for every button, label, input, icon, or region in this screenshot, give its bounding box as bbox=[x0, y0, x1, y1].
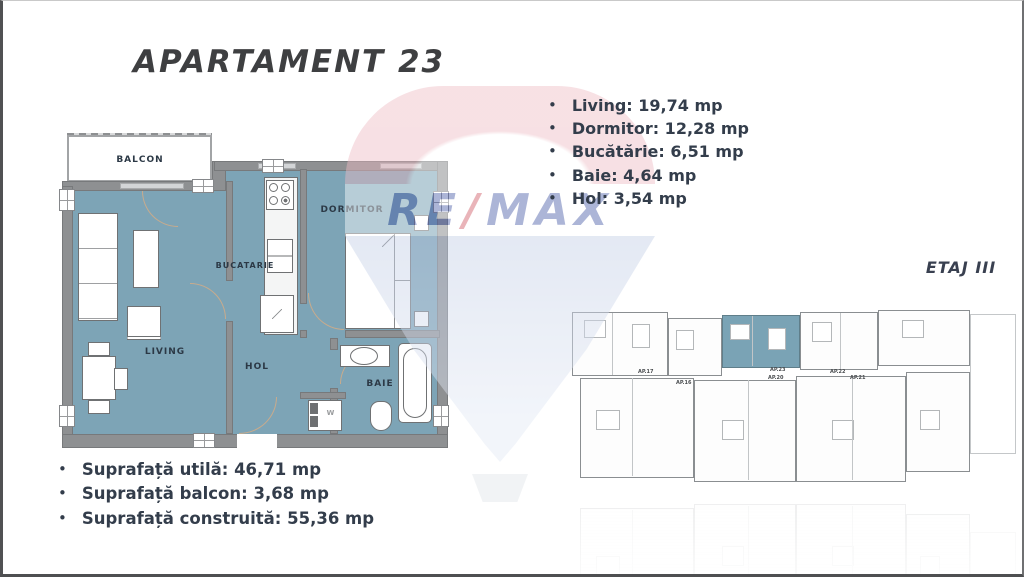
bullet-icon: • bbox=[548, 144, 557, 159]
mini-unit-label: AP.23 bbox=[770, 367, 785, 373]
bullet-icon: • bbox=[548, 121, 557, 136]
washer-drawer bbox=[310, 416, 318, 427]
mini-partition bbox=[852, 376, 853, 480]
mini-furniture bbox=[722, 546, 744, 566]
room-label-living: LIVING bbox=[125, 347, 205, 357]
mini-furniture bbox=[596, 410, 620, 430]
mini-partition bbox=[748, 506, 749, 577]
area-living: Living: 19,74 mp bbox=[572, 96, 723, 115]
bullet-icon: • bbox=[58, 511, 67, 526]
wall-kitchen-dormitor bbox=[300, 169, 307, 304]
coffee-table bbox=[133, 230, 159, 288]
mini-unit-label: AP.21 bbox=[850, 375, 865, 381]
list-item: •Suprafață construită: 55,36 mp bbox=[58, 509, 374, 533]
washer-drawer bbox=[310, 403, 318, 414]
page-title: APARTAMENT 23 bbox=[133, 44, 445, 80]
room-areas-list: •Living: 19,74 mp •Dormitor: 12,28 mp •B… bbox=[548, 96, 749, 212]
mini-unit-label: AP.17 bbox=[638, 369, 653, 375]
total-balcon: Suprafață balcon: 3,68 mp bbox=[82, 484, 329, 503]
bed bbox=[345, 233, 411, 329]
mini-partition bbox=[752, 316, 753, 366]
mini-partition bbox=[840, 313, 841, 369]
mini-furniture bbox=[920, 556, 940, 576]
fridge-mark bbox=[272, 309, 282, 319]
bullet-icon: • bbox=[548, 191, 557, 206]
surface-totals-list: •Suprafață utilă: 46,71 mp •Suprafață ba… bbox=[58, 460, 374, 533]
list-item: •Living: 19,74 mp bbox=[548, 96, 749, 119]
flyer-canvas: APARTAMENT 23 •Living: 19,74 mp •Dormito… bbox=[0, 0, 1024, 577]
mini-furniture bbox=[812, 322, 832, 342]
mini-terrace-outline bbox=[970, 314, 1016, 454]
main-floor-plan: BALCON bbox=[62, 133, 448, 448]
bath-sink bbox=[350, 347, 378, 365]
burner-icon bbox=[269, 183, 278, 192]
room-label-balcon: BALCON bbox=[90, 155, 190, 165]
bullet-icon: • bbox=[548, 98, 557, 113]
list-item: •Hol: 3,54 mp bbox=[548, 189, 749, 212]
mini-unit-label: AP.20 bbox=[768, 375, 783, 381]
mini-furniture bbox=[920, 410, 940, 430]
balloon-basket bbox=[472, 474, 528, 502]
window-dormitor bbox=[380, 163, 422, 169]
column-marker bbox=[262, 159, 284, 173]
mini-furniture bbox=[730, 324, 750, 340]
bullet-icon: • bbox=[548, 168, 557, 183]
column-marker bbox=[433, 405, 449, 427]
area-bucatarie: Bucătărie: 6,51 mp bbox=[572, 142, 744, 161]
column-marker bbox=[192, 179, 214, 193]
chair bbox=[88, 400, 110, 414]
chair bbox=[114, 368, 128, 390]
wall-hol-dormitor-left bbox=[300, 330, 307, 338]
chair bbox=[88, 342, 110, 356]
mini-furniture bbox=[902, 320, 924, 338]
total-utila: Suprafață utilă: 46,71 mp bbox=[82, 460, 321, 479]
floor-label: ETAJ III bbox=[903, 258, 1019, 277]
column-marker bbox=[59, 189, 75, 211]
sofa bbox=[78, 213, 118, 321]
list-item: •Baie: 4,64 mp bbox=[548, 166, 749, 189]
room-label-dormitor: DORMITOR bbox=[312, 205, 392, 215]
list-item: •Suprafață utilă: 46,71 mp bbox=[58, 460, 374, 484]
column-marker bbox=[433, 191, 449, 213]
washer-label: W bbox=[322, 409, 340, 417]
column-marker bbox=[59, 405, 75, 427]
mini-furniture bbox=[676, 330, 694, 350]
bullet-icon: • bbox=[58, 462, 67, 477]
area-dormitor: Dormitor: 12,28 mp bbox=[572, 119, 749, 138]
armchair bbox=[127, 306, 161, 340]
pillow-fold bbox=[382, 235, 394, 247]
wall-dormitor-baie-bottom bbox=[345, 330, 440, 338]
mini-furniture bbox=[832, 420, 854, 440]
mini-furniture bbox=[596, 556, 620, 576]
mini-partition bbox=[852, 506, 853, 577]
mini-terrace-outline bbox=[970, 532, 1016, 577]
room-label-baie: BAIE bbox=[350, 379, 410, 389]
mini-furniture bbox=[722, 420, 744, 440]
mini-unit bbox=[796, 504, 906, 577]
room-label-hol: HOL bbox=[227, 362, 287, 372]
mini-floor-plan-reflection: AP.17 AP.16 AP.23 AP.20 AP.22 AP.21 bbox=[572, 494, 1020, 577]
mini-unit-highlight-ap23 bbox=[722, 315, 800, 368]
wall-washer-niche bbox=[300, 392, 346, 399]
dining-table bbox=[82, 356, 116, 400]
bed-divider bbox=[394, 234, 395, 328]
list-item: •Dormitor: 12,28 mp bbox=[548, 119, 749, 142]
list-item: •Suprafață balcon: 3,68 mp bbox=[58, 484, 374, 508]
mini-furniture bbox=[768, 328, 786, 350]
mini-partition bbox=[632, 510, 633, 577]
nightstand bbox=[414, 311, 429, 327]
bullet-icon: • bbox=[58, 486, 67, 501]
area-hol: Hol: 3,54 mp bbox=[572, 189, 687, 208]
nightstand bbox=[414, 215, 429, 231]
mini-unit-label: AP.22 bbox=[830, 369, 845, 375]
mini-furniture bbox=[584, 320, 606, 338]
mini-partition bbox=[632, 378, 633, 476]
mini-unit bbox=[694, 504, 796, 577]
mini-unit bbox=[878, 310, 970, 366]
room-label-bucatarie: BUCATARIE bbox=[214, 261, 276, 270]
burner-icon bbox=[269, 196, 278, 205]
column-marker bbox=[193, 433, 215, 448]
mini-unit bbox=[694, 380, 796, 482]
burner-icon bbox=[281, 183, 290, 192]
mini-furniture bbox=[832, 546, 854, 566]
toilet bbox=[370, 401, 392, 431]
window-living bbox=[120, 183, 184, 189]
mini-partition bbox=[612, 313, 613, 375]
total-construita: Suprafață construită: 55,36 mp bbox=[82, 509, 374, 528]
mini-unit-label: AP.16 bbox=[676, 380, 691, 386]
remax-slash: / bbox=[463, 185, 484, 236]
mini-partition bbox=[748, 380, 749, 480]
entrance-door-opening bbox=[237, 434, 277, 448]
wall-baie-left-upper bbox=[330, 338, 338, 350]
area-baie: Baie: 4,64 mp bbox=[572, 166, 696, 185]
burner-icon bbox=[281, 196, 290, 205]
wall-living-hol-lower bbox=[226, 321, 233, 434]
mini-furniture bbox=[632, 324, 650, 348]
list-item: •Bucătărie: 6,51 mp bbox=[548, 142, 749, 165]
mini-floor-plan: AP.17 AP.16 AP.23 AP.20 AP.22 AP.21 bbox=[572, 300, 1020, 492]
bed-divider bbox=[394, 280, 410, 281]
